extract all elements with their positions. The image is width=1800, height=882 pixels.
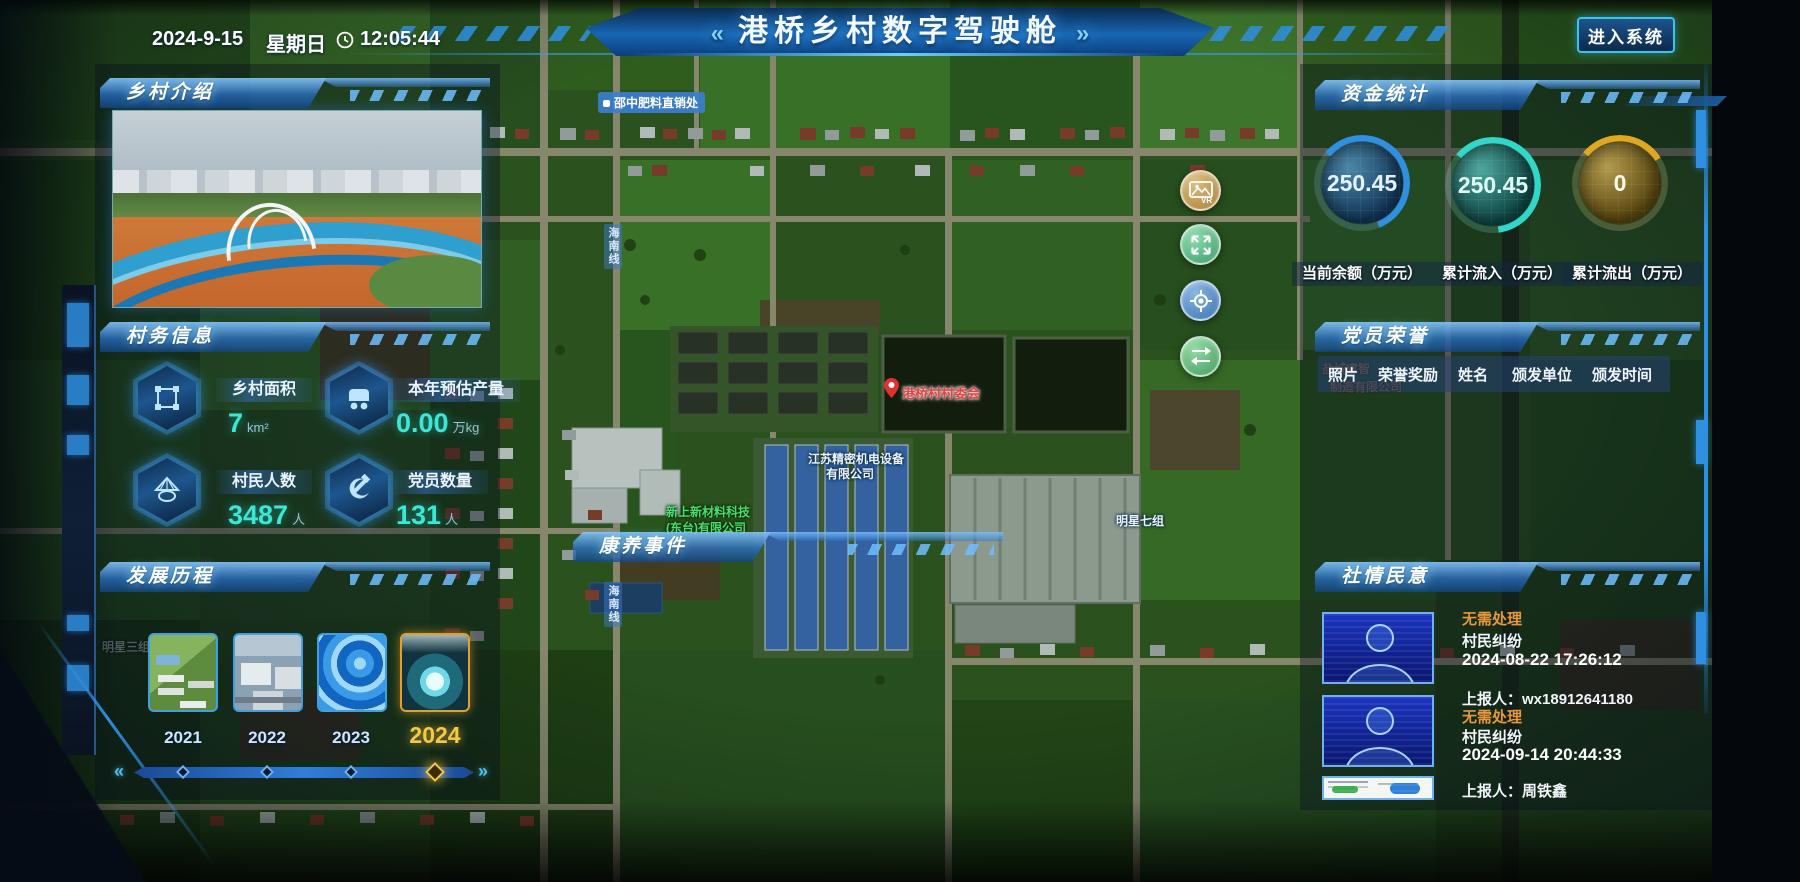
frame-right-segment [1696, 612, 1706, 664]
map-label-jiangsu-co-line2: 有限公司 [826, 465, 874, 482]
sentiment-time: 2024-09-14 20:44:33 [1462, 745, 1622, 765]
sentiment-item-photo[interactable] [1322, 612, 1434, 684]
sentiment-item-photo-partial[interactable] [1322, 776, 1434, 800]
honor-col-photo: 照片 [1328, 364, 1358, 385]
solar-panels [590, 583, 662, 613]
gauge-label-outflow: 累计流出（万元） [1562, 262, 1702, 286]
honor-col-award: 荣誉奖励 [1378, 364, 1438, 385]
map-label-mingxing7: 明星七组 [1116, 512, 1164, 529]
page-title: «港桥乡村数字驾驶舱» [586, 8, 1214, 58]
panel-header-party-honor: 党员荣誉 [1315, 322, 1700, 352]
map-switch-button[interactable] [1180, 336, 1221, 377]
honor-table-header: 照片 荣誉奖励 姓名 颁发单位 颁发时间 [1318, 356, 1670, 392]
sentiment-status: 无需处理 [1462, 706, 1522, 727]
map-label-fertilizer-shop[interactable]: 邵中肥料直销处 [598, 92, 705, 113]
header-weekday: 星期日 [266, 28, 326, 57]
map-label-road-bottom: 海南线 [604, 582, 622, 627]
map-label-mingxing3: 明星三组 [102, 638, 150, 655]
year-2022[interactable]: 2022 [232, 728, 302, 748]
banner-wing-right [1209, 26, 1460, 41]
stat-label: 乡村面积 [216, 378, 312, 402]
village-committee-pin-icon[interactable] [884, 378, 899, 398]
sentiment-time: 2024-08-22 17:26:12 [1462, 650, 1622, 670]
stat-value: 7km² [228, 408, 269, 439]
party-emblem-icon [330, 458, 388, 522]
stat-value: 131人 [396, 500, 458, 531]
panel-header-development: 发展历程 [100, 562, 490, 592]
map-label-road-top: 海南线 [604, 224, 622, 269]
sentiment-item-photo[interactable] [1322, 695, 1434, 767]
cart-icon [330, 366, 388, 430]
panel-header-funds: 资金统计 [1315, 80, 1700, 110]
sentiment-type: 村民纠纷 [1462, 630, 1522, 651]
stat-value: 0.00万kg [396, 408, 479, 439]
year-2021[interactable]: 2021 [148, 728, 218, 748]
honor-col-date: 颁发时间 [1592, 364, 1652, 385]
stat-value: 3487人 [228, 500, 305, 531]
frame-left-bar [62, 285, 96, 755]
honor-col-name: 姓名 [1458, 364, 1488, 385]
timeline-prev-arrow[interactable]: « [114, 761, 124, 782]
honor-col-issuer: 颁发单位 [1512, 364, 1572, 385]
title-deco-left: « [711, 20, 724, 47]
development-thumb-2024[interactable] [400, 633, 470, 712]
frame-right-segment [1696, 110, 1706, 168]
sentiment-type: 村民纠纷 [1462, 726, 1522, 747]
gauge-outflow: 0 [1572, 135, 1668, 231]
gauge-inflow: 250.45 [1445, 137, 1541, 233]
year-2023[interactable]: 2023 [316, 728, 386, 748]
clock-icon [336, 31, 354, 49]
farmer-hat-icon [138, 458, 196, 522]
frame-right-black [1712, 0, 1800, 882]
panel-header-sentiment: 社情民意 [1315, 562, 1700, 592]
header-date: 2024-9-15 [152, 28, 243, 51]
development-thumb-2022[interactable] [233, 633, 303, 712]
title-deco-right: » [1076, 20, 1089, 47]
stat-label: 村民人数 [216, 470, 312, 494]
map-label-xincai-co-line1: 新上新材料科技 [666, 503, 750, 520]
development-thumb-2021[interactable] [148, 633, 218, 712]
panel-header-village-intro: 乡村介绍 [100, 78, 490, 108]
map-vr-image-button[interactable]: VR [1180, 170, 1221, 211]
sentiment-status: 无需处理 [1462, 608, 1522, 629]
gauge-label-inflow: 累计流入（万元） [1432, 262, 1572, 286]
enter-system-button[interactable]: 进入系统 [1577, 17, 1675, 53]
land-area-icon [138, 366, 196, 430]
map-locate-button[interactable] [1180, 280, 1221, 321]
map-label-village-committee[interactable]: 港桥村村委会 [902, 383, 980, 402]
stat-label: 党员数量 [392, 470, 488, 494]
gauge-balance: 250.45 [1314, 135, 1410, 231]
year-2024[interactable]: 2024 [400, 722, 470, 749]
development-thumb-2023[interactable] [317, 633, 387, 712]
gauge-label-balance: 当前余额（万元） [1292, 262, 1432, 286]
title-banner: «港桥乡村数字驾驶舱» [586, 8, 1214, 56]
panel-header-health-events: 康养事件 [573, 532, 1003, 562]
dashboard-root: 邵中肥料直销处 海南线 海南线 港桥村村委会 江苏精密机电设备 有限公司 新上新… [0, 0, 1800, 882]
stat-label: 本年预估产量 [392, 378, 520, 402]
map-fullscreen-button[interactable] [1180, 224, 1221, 265]
svg-text:VR: VR [1201, 196, 1212, 204]
frame-right-segment [1696, 420, 1706, 464]
village-intro-photo [112, 110, 482, 308]
header-time: 12:05:44 [360, 28, 440, 51]
panel-header-village-info: 村务信息 [100, 322, 490, 352]
sentiment-reporter: 上报人：周铁鑫 [1462, 780, 1567, 801]
timeline-next-arrow[interactable]: » [478, 761, 488, 782]
